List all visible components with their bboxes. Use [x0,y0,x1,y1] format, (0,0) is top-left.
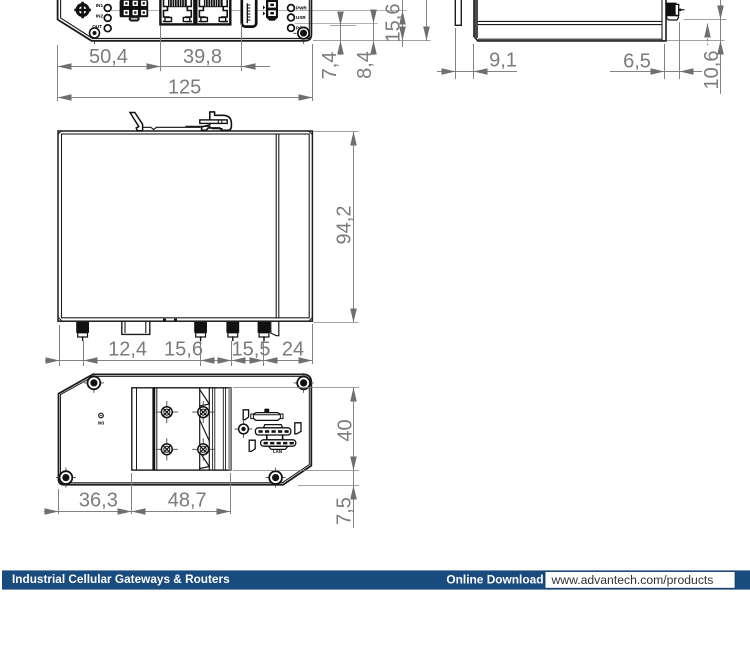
svg-text:40: 40 [335,419,357,441]
svg-text:15,6: 15,6 [164,339,203,361]
svg-text:10,6: 10,6 [701,51,723,90]
svg-text:OUT: OUT [92,24,102,29]
svg-text:7,5: 7,5 [334,497,356,525]
svg-text:6,5: 6,5 [623,51,651,73]
svg-text:LAN: LAN [273,449,282,454]
svg-text:24: 24 [282,339,304,361]
svg-text:94,2: 94,2 [334,206,356,245]
svg-text:7,4: 7,4 [319,52,341,80]
svg-text:USR: USR [296,15,306,20]
svg-text:M3: M3 [98,421,105,426]
svg-text:36,3: 36,3 [79,490,118,512]
svg-text:15,5: 15,5 [232,339,271,361]
svg-text:48,7: 48,7 [168,490,207,512]
svg-text:IN1: IN1 [96,3,104,8]
svg-text:8,4: 8,4 [354,51,376,79]
svg-text:15,6: 15,6 [383,4,405,43]
svg-text:39,8: 39,8 [183,46,222,68]
svg-text:50,4: 50,4 [89,46,128,68]
svg-text:12,4: 12,4 [108,339,147,361]
svg-text:Online Download: Online Download [446,573,543,587]
svg-text:125: 125 [168,77,201,99]
svg-text:9,1: 9,1 [489,50,517,72]
svg-text:www.advantech.com/products: www.advantech.com/products [551,573,714,587]
svg-text:Industrial Cellular Gateways &: Industrial Cellular Gateways & Routers [12,572,230,586]
svg-text:IN2: IN2 [96,14,104,19]
svg-text:PWR: PWR [296,6,307,11]
